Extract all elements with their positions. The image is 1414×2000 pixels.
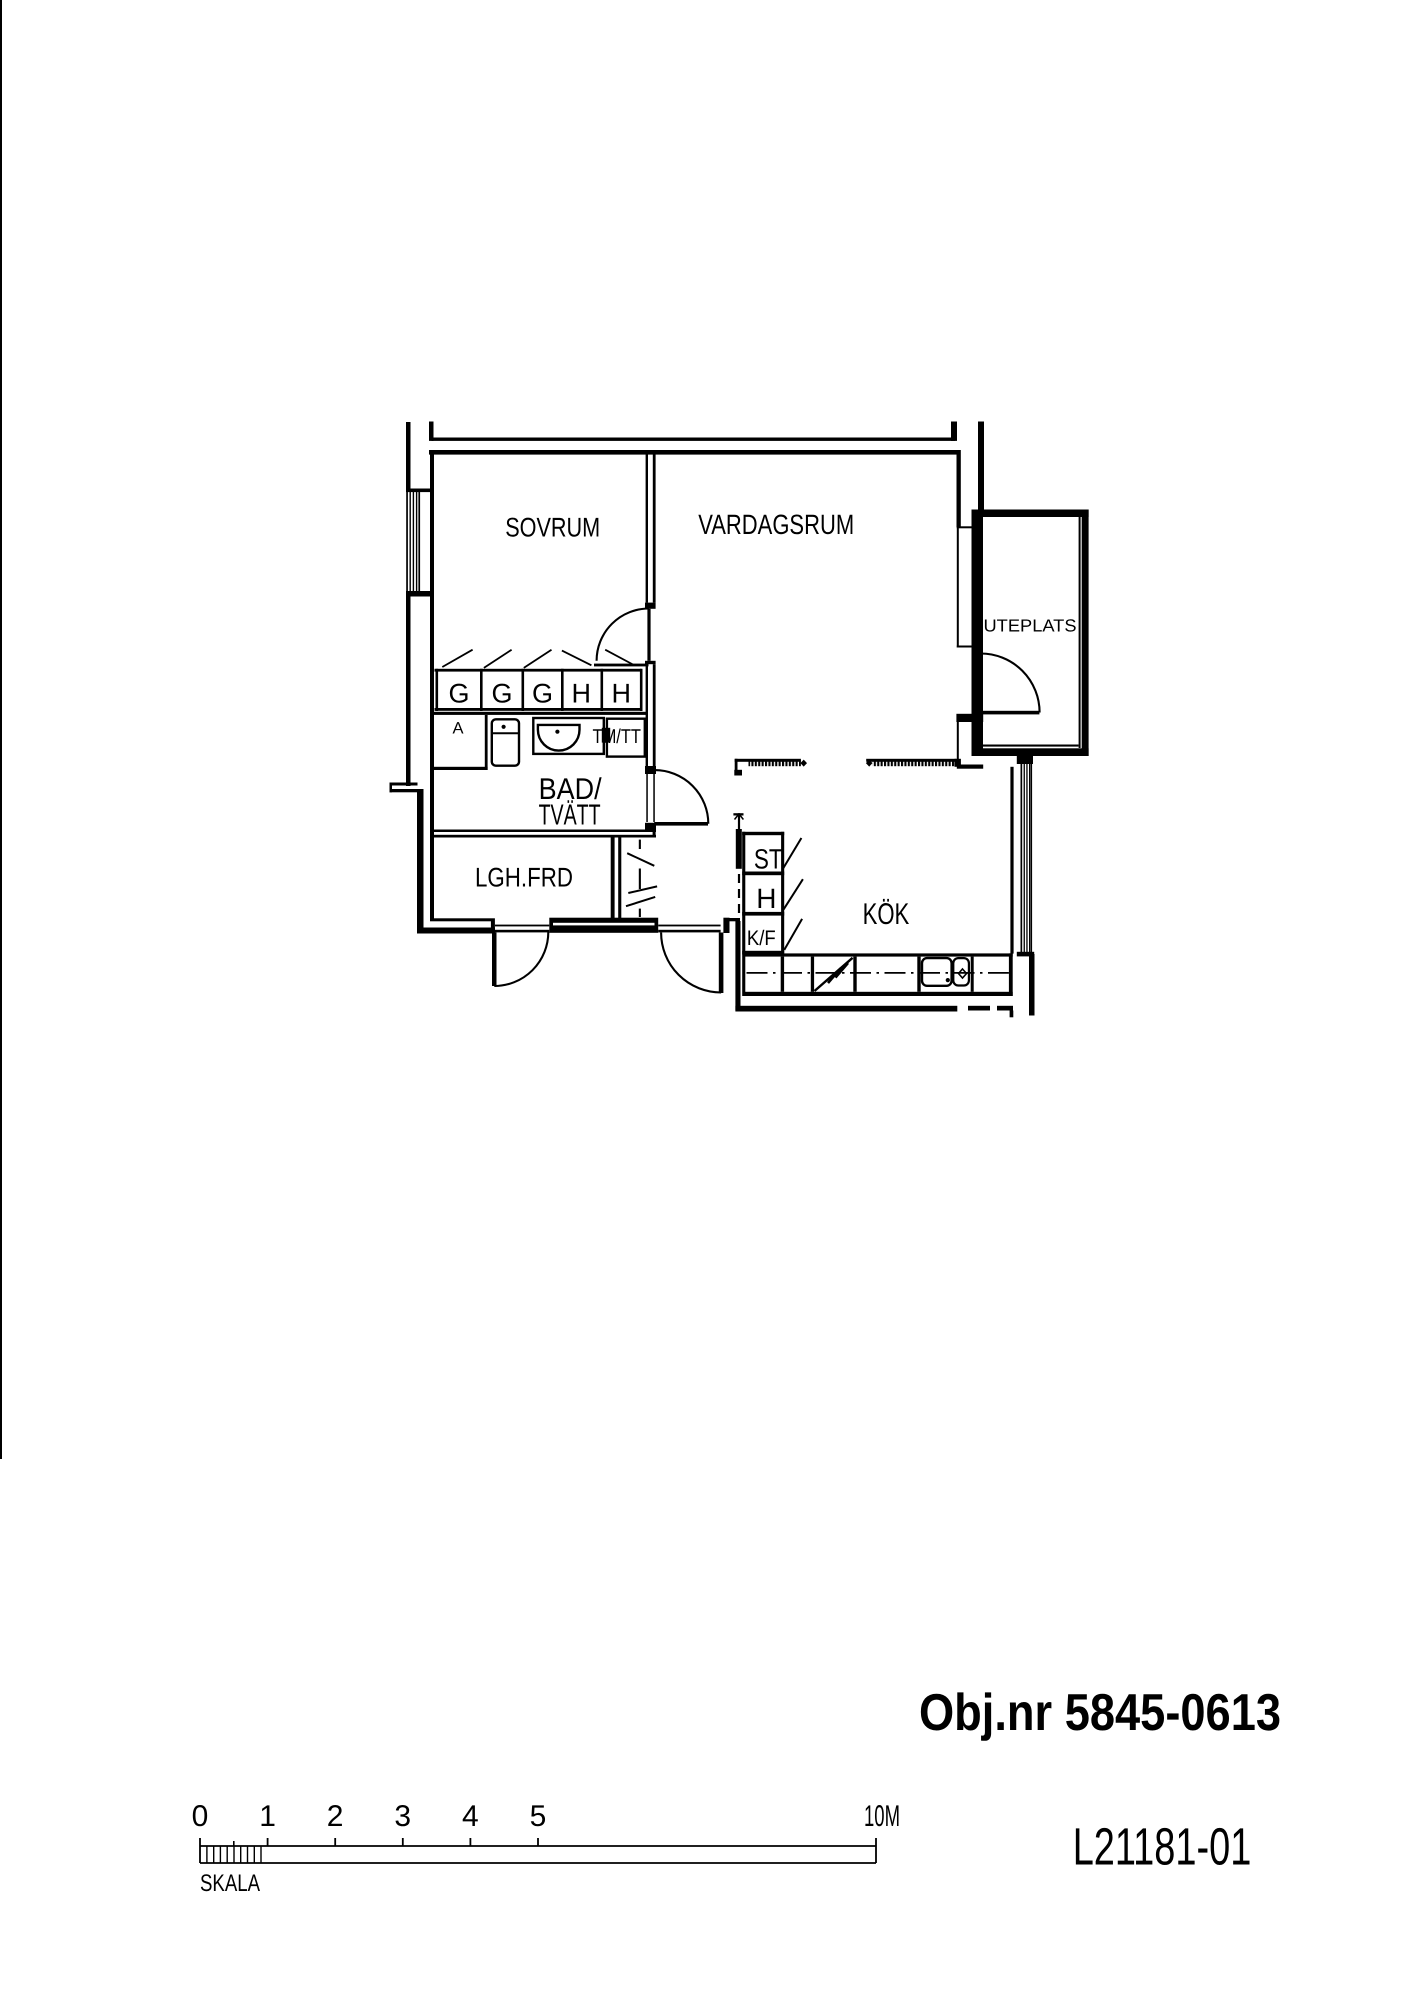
svg-text:G: G: [449, 679, 470, 709]
svg-text:KÖK: KÖK: [863, 898, 910, 931]
svg-text:G: G: [532, 679, 553, 709]
svg-text:5: 5: [530, 1800, 547, 1833]
svg-text:LGH.FRD: LGH.FRD: [475, 862, 573, 892]
svg-text:A: A: [453, 720, 464, 738]
svg-text:L21181-01: L21181-01: [1073, 1818, 1252, 1877]
svg-text:VARDAGSRUM: VARDAGSRUM: [698, 509, 854, 540]
svg-text:0: 0: [192, 1800, 209, 1833]
svg-text:SOVRUM: SOVRUM: [505, 513, 600, 543]
svg-text:UTEPLATS: UTEPLATS: [984, 616, 1077, 636]
svg-text:H: H: [572, 679, 592, 709]
svg-text:ST: ST: [754, 844, 783, 875]
svg-text:TVÄTT: TVÄTT: [539, 800, 601, 832]
svg-text:H: H: [756, 883, 776, 914]
svg-text:1: 1: [259, 1800, 276, 1833]
svg-text:Obj.nr 5845-0613: Obj.nr 5845-0613: [919, 1684, 1281, 1742]
svg-text:SKALA: SKALA: [200, 1870, 260, 1897]
svg-text:3: 3: [394, 1800, 411, 1833]
svg-text:10M: 10M: [864, 1800, 900, 1833]
svg-text:4: 4: [462, 1800, 479, 1833]
svg-text:2: 2: [327, 1800, 344, 1833]
svg-text:K/F: K/F: [747, 927, 776, 950]
svg-text:TM/TT: TM/TT: [593, 726, 642, 748]
svg-text:H: H: [612, 679, 632, 709]
svg-text:G: G: [492, 679, 513, 709]
